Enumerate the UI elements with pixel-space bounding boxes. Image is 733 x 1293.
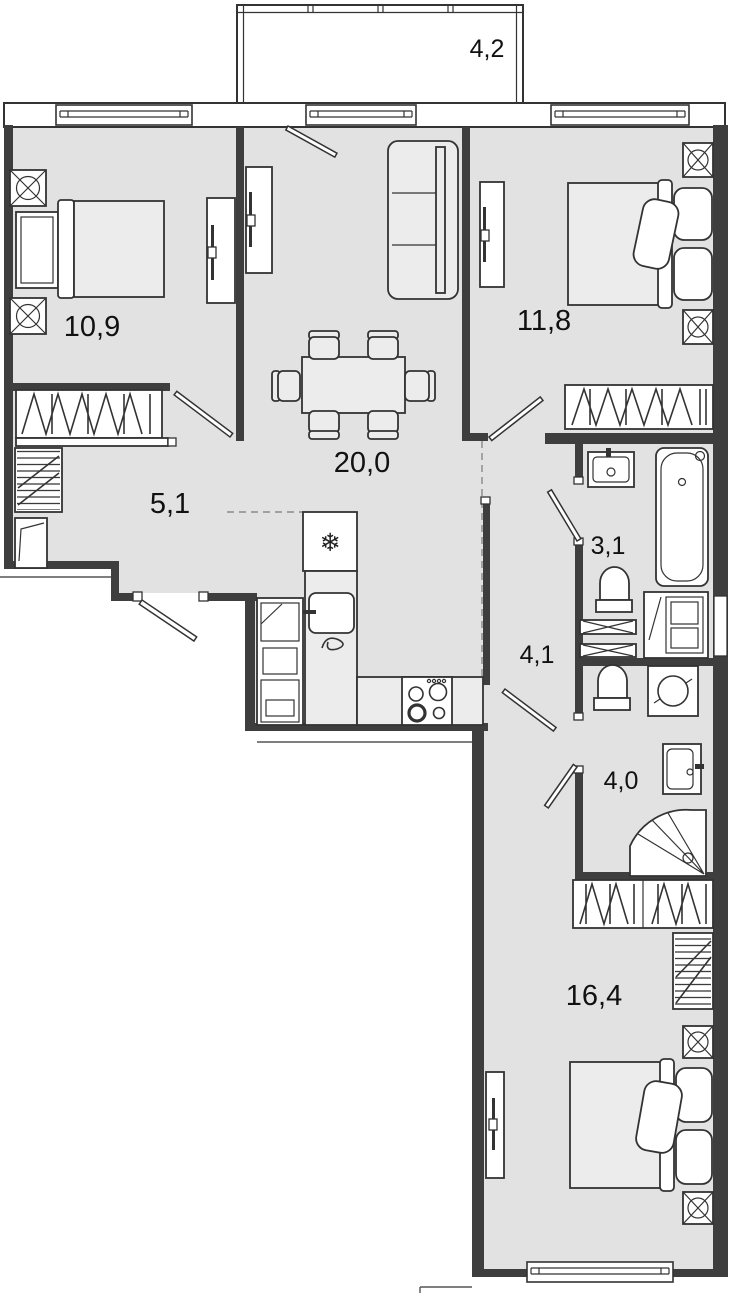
wall-bathroom-west-lower — [575, 540, 583, 660]
wall-shower-west-lower — [575, 768, 583, 877]
balcony: 4,2 — [237, 5, 523, 103]
room-label-bedroom-1: 10,9 — [64, 311, 120, 343]
room-label-hallway: 5,1 — [150, 488, 190, 520]
room-label-bedroom-3: 16,4 — [566, 980, 622, 1012]
room-label-corridor: 4,1 — [520, 641, 555, 669]
pillow — [674, 248, 712, 300]
tv-console — [246, 167, 272, 273]
nightstand-lamp — [683, 1192, 713, 1224]
wardrobe-rack — [16, 390, 176, 446]
room-label-bathroom: 3,1 — [591, 532, 626, 560]
balcony-door-opening — [281, 104, 307, 125]
window-living-room — [306, 105, 416, 125]
tv-console — [486, 1072, 504, 1178]
window-bedroom-2 — [551, 105, 689, 125]
lower-wing-west-wall — [472, 731, 484, 1277]
faucet — [303, 610, 316, 614]
tv-console — [480, 182, 504, 287]
entrance-jamb-right — [199, 592, 208, 601]
east-wall — [713, 125, 728, 1277]
nightstand-lamp — [10, 170, 46, 206]
bathroom-shelf-unit — [644, 592, 708, 658]
bed — [74, 201, 164, 297]
kitchen-west-wall — [245, 601, 255, 725]
dresser — [16, 212, 58, 288]
shower-jamb-top — [574, 713, 583, 720]
tv-console — [207, 198, 235, 303]
window-bedroom-1 — [56, 105, 192, 125]
room-label-living-kitchen: 20,0 — [334, 447, 390, 479]
shoe-rack — [673, 933, 713, 1009]
entrance-door-leaf — [139, 600, 197, 641]
nightstand-lamp — [683, 310, 713, 344]
wall-bathroom-shower-divider — [575, 658, 713, 666]
shower-sink — [663, 744, 704, 794]
bed-headboard — [58, 200, 74, 298]
bathroom-sink — [588, 448, 634, 487]
wall-shower-west-upper — [575, 666, 583, 720]
kitchen-stove-counter — [357, 677, 483, 725]
snowflake-icon: ❄ — [320, 528, 341, 557]
room-label-balcony: 4,2 — [470, 35, 505, 63]
kitchen-tall-cabinets — [257, 598, 303, 725]
floor-plan-drawing: 4,2 — [0, 0, 733, 1293]
sofa — [388, 141, 458, 299]
room-label-shower: 4,0 — [604, 767, 639, 795]
washing-machine — [648, 666, 698, 716]
bathroom-jamb-top — [574, 477, 583, 484]
wall-living-bedroom2 — [462, 127, 470, 441]
pouf — [15, 518, 47, 568]
entrance-jamb-left — [133, 592, 142, 601]
wall-bedroom2-south — [545, 433, 713, 444]
kitchen-sink-counter — [303, 571, 357, 725]
pillow — [674, 188, 712, 240]
bathtub — [656, 448, 708, 586]
wardrobe-rack — [565, 385, 713, 429]
window-bedroom-3 — [527, 1262, 673, 1282]
nightstand-lamp — [10, 298, 46, 334]
dining-table — [302, 357, 405, 413]
east-wall-shaft — [714, 596, 727, 656]
pillow — [676, 1130, 712, 1184]
shoe-rack — [15, 448, 62, 512]
corridor-wall-cap — [481, 497, 490, 504]
nightstand-lamp — [683, 143, 713, 177]
floor-plan-page: 4,2 — [0, 0, 733, 1293]
wall-bedroom1-living — [236, 127, 244, 441]
room-label-bedroom-2: 11,8 — [517, 305, 571, 337]
wall-corridor-west — [483, 503, 490, 685]
wall-bedroom2-south-stub — [462, 433, 488, 441]
nightstand-lamp — [683, 1026, 713, 1058]
wardrobe-rack — [573, 880, 713, 928]
